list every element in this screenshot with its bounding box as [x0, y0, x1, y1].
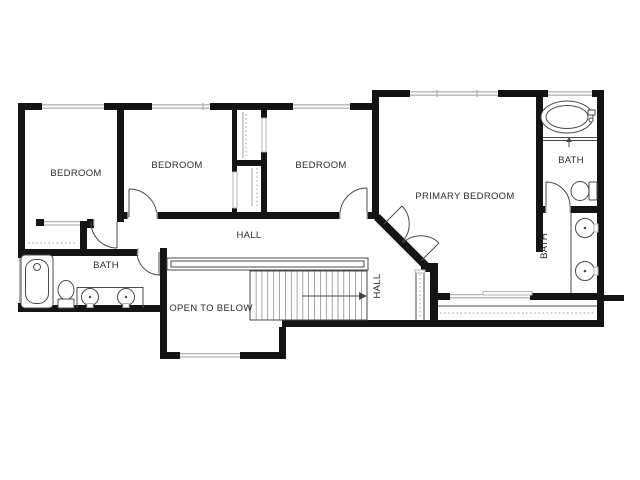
primary-bath-fixtures — [541, 101, 598, 293]
bedroom-2-label: BEDROOM — [151, 160, 202, 171]
hall-label: HALL — [237, 230, 262, 241]
railing-icon — [415, 270, 425, 320]
primary-bath-wc-label: BATH — [558, 155, 584, 166]
stair-guard-rail — [167, 258, 368, 270]
toilet-icon — [571, 182, 597, 201]
shower-arrow-icon — [566, 137, 572, 147]
sink-icon — [576, 219, 599, 281]
hall-bath-fixtures — [21, 255, 143, 308]
oval-tub-icon — [541, 101, 595, 133]
stair-guard-rail-inner — [171, 261, 364, 267]
primary-bedroom-label: PRIMARY BEDROOM — [415, 191, 514, 202]
floor-plan-page: BEDROOM BEDROOM BEDROOM PRIMARY BEDROOM … — [0, 0, 640, 480]
primary-bath-vanity-label: BATH — [539, 233, 550, 259]
deck-edge — [438, 306, 597, 313]
hall-bath-label: BATH — [93, 260, 119, 271]
alcove-tub-icon — [21, 255, 53, 308]
floor-plan-svg: BEDROOM BEDROOM BEDROOM PRIMARY BEDROOM … — [0, 0, 640, 480]
stair-hall-label: HALL — [372, 274, 383, 299]
bedroom-1-label: BEDROOM — [50, 168, 101, 179]
sink-icon — [82, 289, 135, 308]
bedroom-3-label: BEDROOM — [295, 160, 346, 171]
open-to-below-label: OPEN TO BELOW — [169, 303, 252, 314]
sliding-door-icon — [450, 292, 532, 298]
toilet-icon — [58, 281, 74, 309]
sliding-closet-door-icon — [44, 222, 80, 225]
